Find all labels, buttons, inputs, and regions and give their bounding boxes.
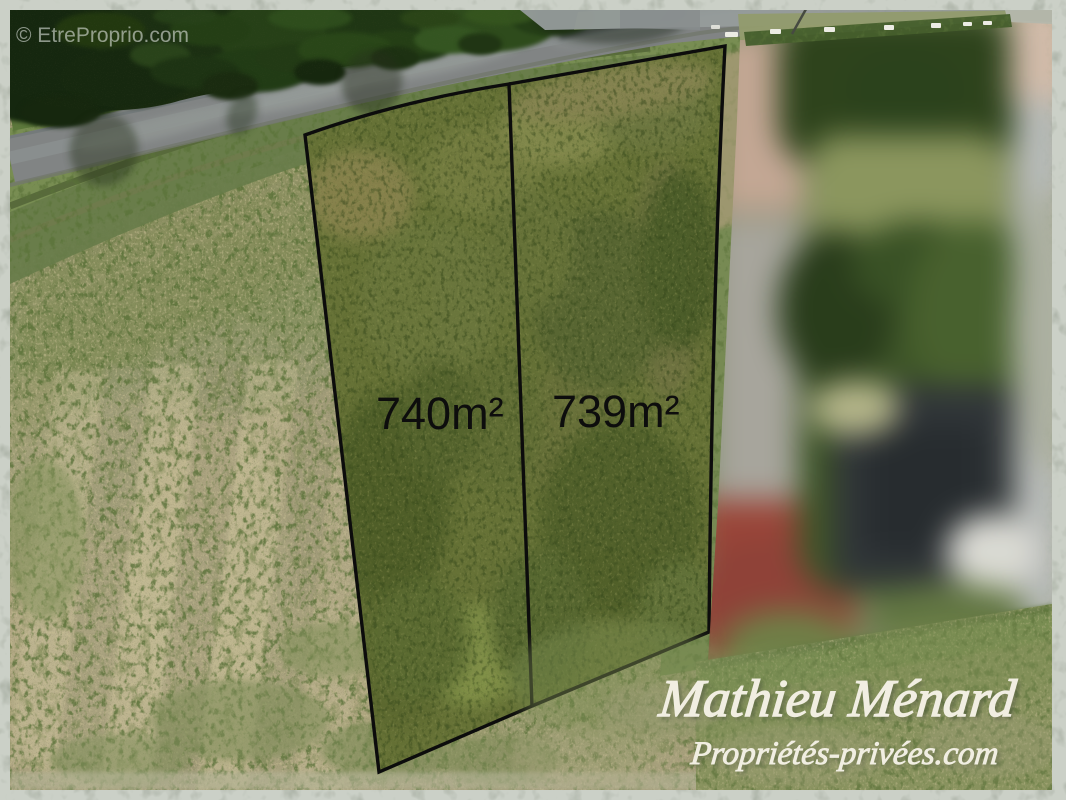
svg-text:Mathieu Ménard: Mathieu Ménard	[656, 670, 1019, 728]
svg-text:© EtreProprio.com: © EtreProprio.com	[16, 24, 189, 47]
svg-text:Propriétés-privées.com: Propriétés-privées.com	[688, 736, 1000, 772]
svg-text:739m²: 739m²	[552, 386, 680, 437]
svg-text:740m²: 740m²	[376, 388, 504, 439]
